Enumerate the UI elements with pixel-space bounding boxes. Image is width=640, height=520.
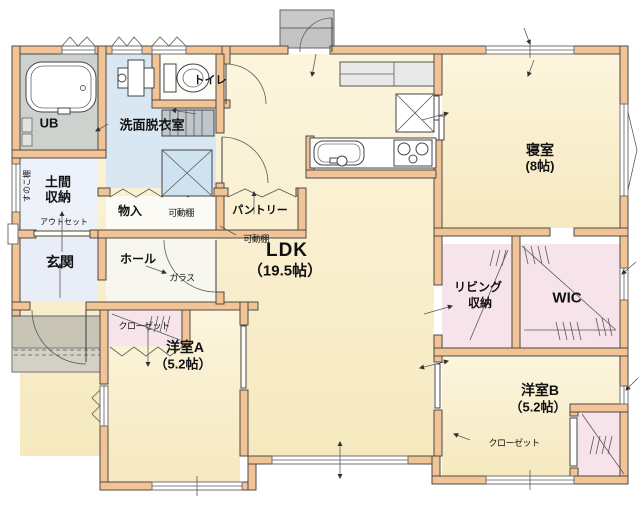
entrance-porch (12, 316, 104, 372)
label-pantry-shelf: 可動棚 (243, 234, 269, 244)
room-label-pantry: パントリー (232, 205, 288, 218)
room-label-living-storage-1: リビング (454, 281, 502, 295)
floor-hall (106, 238, 216, 302)
room-size-bedroom: (8帖) (526, 160, 555, 175)
room-label-bedroom: 寝室 (526, 142, 554, 158)
label-monoire-shelf: 可動棚 (168, 208, 194, 218)
refrigerator-icon (396, 94, 434, 132)
washing-machine-icon (162, 150, 212, 196)
awning-window-icon (62, 37, 95, 46)
room-label-room-a: 洋室A (166, 339, 204, 355)
sink-icon (314, 141, 364, 166)
room-label-genkan: 玄関 (46, 254, 74, 270)
room-label-room-b: 洋室B (521, 382, 559, 398)
bedroom-sliding-door (439, 116, 444, 140)
room-label-ub: UB (40, 117, 59, 132)
room-label-doma-1: 土間 (45, 176, 71, 191)
awning-window-icon (112, 37, 142, 46)
label-glass-door: ガラス (169, 273, 194, 283)
room-label-toilet: トイレ (194, 75, 227, 88)
kitchen-counter (310, 138, 436, 168)
label-outset: アウトセット (40, 217, 88, 226)
label-closet-b: クローゼット (488, 438, 539, 448)
room-b-sliding-door (435, 364, 440, 408)
room-size-room-a: （5.2帖） (154, 358, 211, 373)
floorplan-drawing (0, 0, 640, 520)
cupboard-icon (340, 62, 434, 86)
label-closet-a: クローゼット (118, 321, 169, 331)
floor-plan: UB 洗面脱衣室 トイレ 土間 収納 すのこ棚 アウトセット 玄関 ホール 物入… (0, 0, 640, 520)
room-label-hall: ホール (120, 253, 156, 267)
stove-icon (394, 140, 432, 166)
room-label-doma-2: 収納 (45, 191, 71, 206)
room-label-ldk: LDK (266, 240, 308, 262)
room-a-sliding-door (241, 326, 246, 388)
casement-window-icon (628, 112, 637, 190)
back-door-steps (280, 10, 334, 48)
awning-window-icon (152, 37, 186, 46)
room-label-washroom: 洗面脱衣室 (119, 119, 184, 134)
floor-closet-b (578, 412, 620, 476)
label-sunoko-shelf: すのこ棚 (22, 170, 31, 202)
room-label-monoire: 物入 (118, 205, 142, 219)
room-label-wic: WIC (552, 289, 581, 306)
room-label-living-storage-2: 収納 (468, 297, 492, 311)
closet-b-door (570, 418, 577, 466)
room-size-room-b: （5.2帖） (509, 401, 566, 416)
room-size-ldk: （19.5帖） (248, 262, 322, 279)
